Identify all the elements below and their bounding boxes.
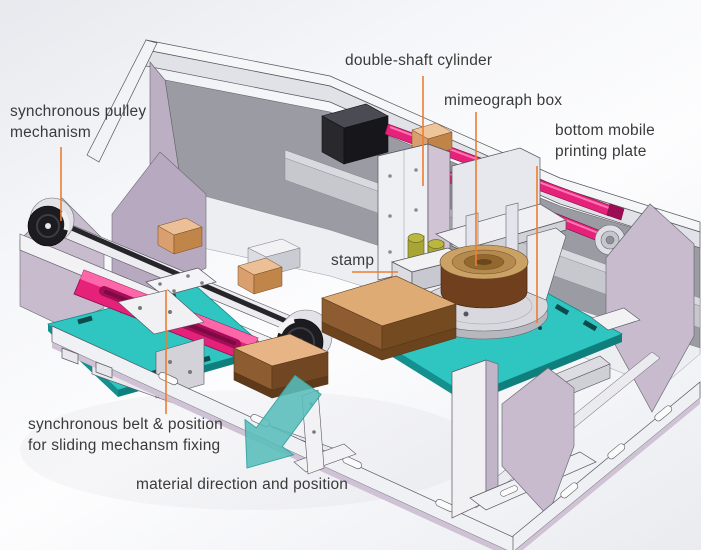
- label-double-shaft-cylinder: double-shaft cylinder: [345, 50, 492, 71]
- stepper-motor: [322, 104, 388, 164]
- label-stamp: stamp: [331, 250, 374, 271]
- label-mimeograph-box: mimeograph box: [444, 90, 562, 111]
- label-synchronous-pulley-mechanism: synchronous pulley mechanism: [10, 101, 146, 143]
- figure-canvas: synchronous pulley mechanism double-shaf…: [0, 0, 701, 550]
- label-synchronous-belt: synchronous belt & position for sliding …: [28, 414, 223, 456]
- label-material-direction: material direction and position: [136, 474, 348, 495]
- machine-illustration: [0, 0, 701, 550]
- label-bottom-mobile-printing-plate: bottom mobile printing plate: [555, 120, 655, 162]
